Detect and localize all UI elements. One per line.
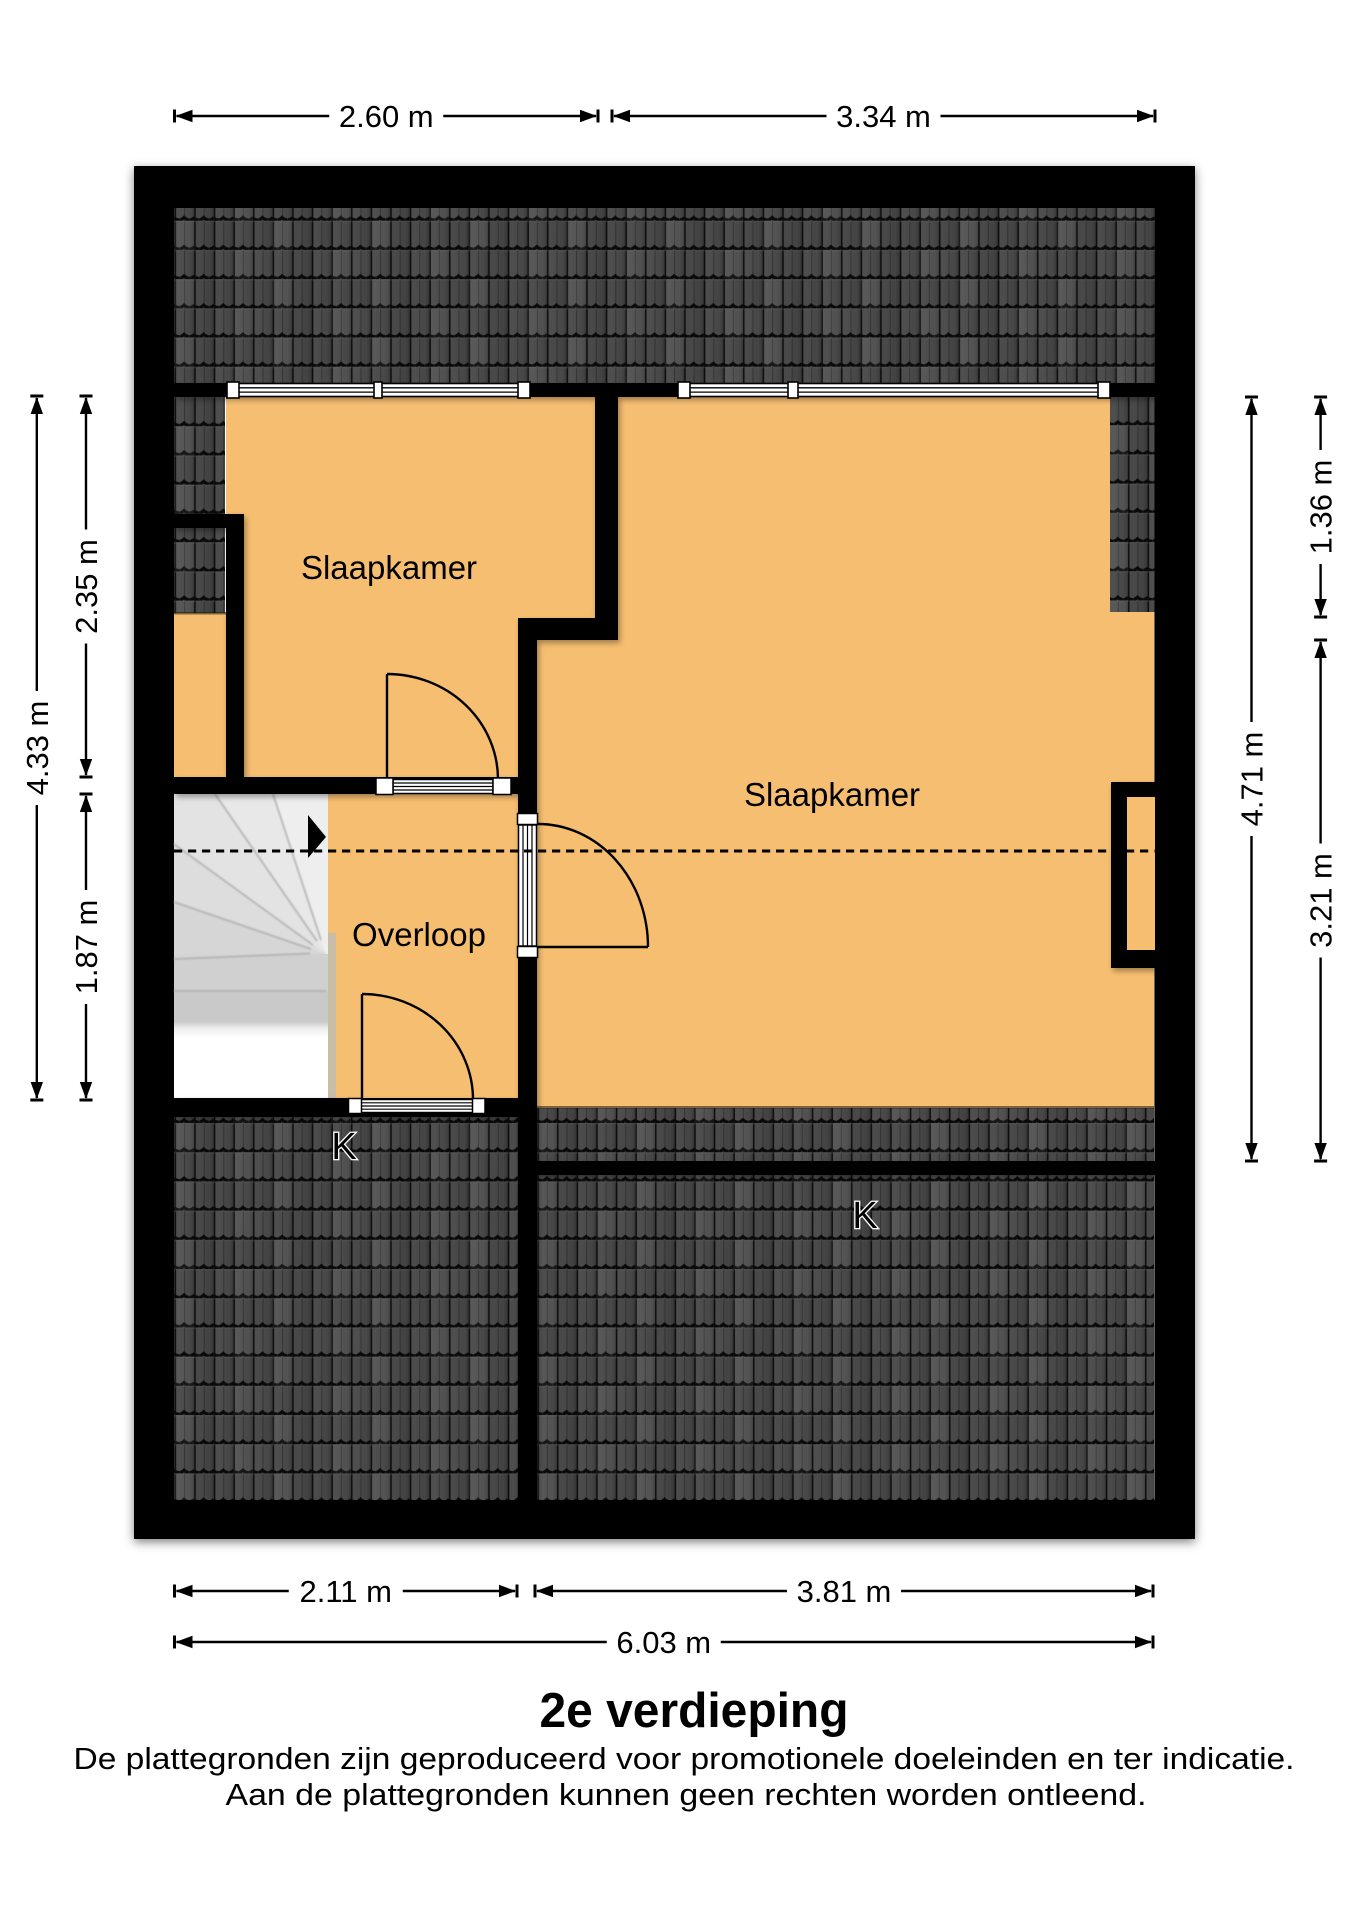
svg-text:1.87 m: 1.87 m <box>69 900 104 995</box>
svg-text:Overloop: Overloop <box>352 916 486 953</box>
svg-text:2.11 m: 2.11 m <box>300 1574 392 1609</box>
svg-text:2.35 m: 2.35 m <box>69 539 104 634</box>
svg-text:4.33 m: 4.33 m <box>20 701 55 796</box>
svg-text:2e verdieping: 2e verdieping <box>540 1684 849 1738</box>
svg-text:Slaapkamer: Slaapkamer <box>301 549 477 586</box>
svg-text:1.36 m: 1.36 m <box>1304 460 1339 555</box>
svg-text:Slaapkamer: Slaapkamer <box>744 776 920 813</box>
svg-text:3.34 m: 3.34 m <box>836 99 931 134</box>
svg-text:K: K <box>852 1195 877 1237</box>
svg-text:3.81 m: 3.81 m <box>797 1574 892 1609</box>
svg-text:K: K <box>331 1126 356 1168</box>
svg-text:2.60 m: 2.60 m <box>339 99 434 134</box>
svg-text:De plattegronden zijn geproduc: De plattegronden zijn geproduceerd voor … <box>74 1742 1295 1776</box>
svg-text:4.71 m: 4.71 m <box>1235 732 1270 827</box>
svg-text:Aan de plattegronden kunnen ge: Aan de plattegronden kunnen geen rechten… <box>226 1778 1147 1812</box>
svg-text:6.03 m: 6.03 m <box>616 1625 711 1660</box>
svg-text:3.21 m: 3.21 m <box>1304 853 1339 948</box>
